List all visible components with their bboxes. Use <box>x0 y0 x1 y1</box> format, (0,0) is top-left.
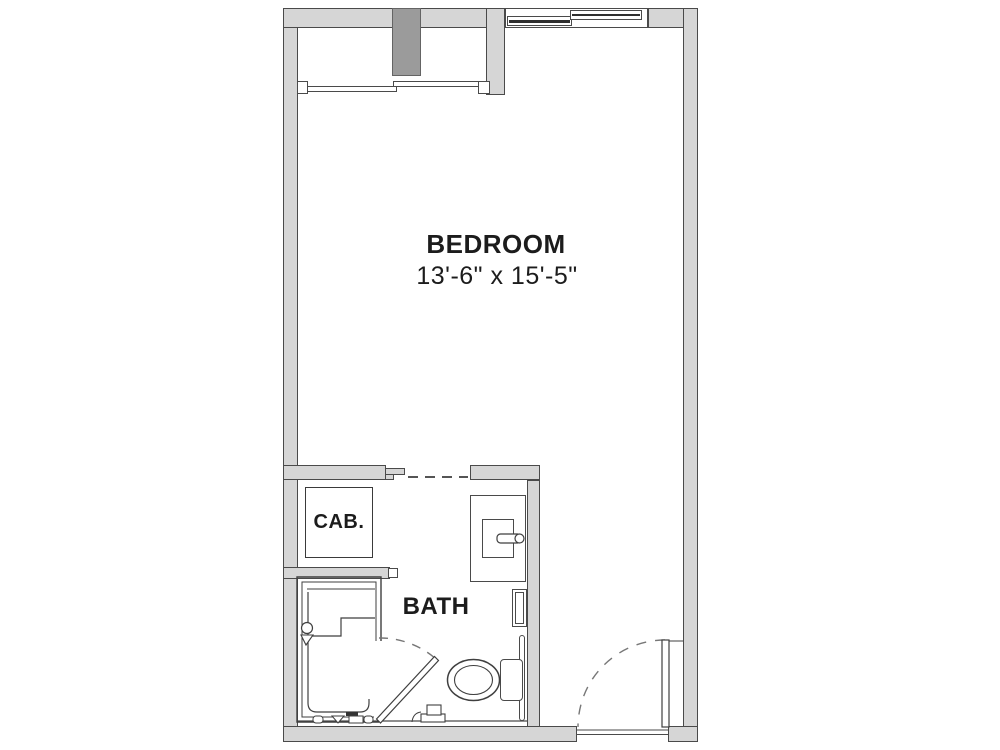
shower-valve <box>302 623 313 634</box>
sink-alcove-top-wall <box>470 465 540 480</box>
floor-plan: BEDROOM 13'-6" x 15'-5" CAB. BATH <box>0 0 1000 750</box>
shower-fitting-mid <box>349 716 363 723</box>
shower-inner-line <box>302 582 376 717</box>
door-stop-base <box>421 714 445 722</box>
shelf-unit <box>512 589 527 627</box>
shower-drain-tick <box>346 712 358 716</box>
toilet-bowl <box>448 660 500 701</box>
door-stop-arc <box>412 712 421 722</box>
bath-top-wall <box>283 465 386 480</box>
shower-wall-end-cap <box>388 568 398 578</box>
shower-valve-handle <box>301 635 313 645</box>
bath-door-jamb-step <box>385 474 394 480</box>
bath-door-arc <box>379 638 436 659</box>
shower-fitting-triangle <box>332 716 344 723</box>
structural-column <box>392 8 421 76</box>
entry-door-leaf <box>662 640 669 727</box>
shower-seat <box>311 618 375 636</box>
shower-fitting-right <box>364 716 373 723</box>
window-glass-left <box>509 20 570 23</box>
window-frame <box>505 8 648 28</box>
cabinet-label: CAB. <box>305 487 373 558</box>
door-stop-block <box>427 705 441 715</box>
toilet-bowl-inner <box>455 666 493 695</box>
bath-right-wall <box>527 480 540 727</box>
entry-door <box>577 640 683 735</box>
cabinet-bottom-wall <box>283 567 390 579</box>
shower-pan <box>308 592 369 712</box>
shelf-inner <box>515 592 524 624</box>
entry-threshold <box>577 730 668 735</box>
right-wall <box>683 8 698 742</box>
bottom-wall-left <box>283 726 577 742</box>
fixtures-overlay <box>0 0 1000 750</box>
shower-outer-line <box>297 577 381 722</box>
closet-sliding-door-left <box>307 86 397 92</box>
window-glass-right <box>572 14 640 17</box>
sink-basin <box>482 519 514 558</box>
toilet-tank <box>500 659 523 701</box>
closet-jamb-right <box>478 81 490 94</box>
bedroom-label: BEDROOM <box>371 228 621 260</box>
bottom-wall-right <box>668 726 698 742</box>
left-wall <box>283 8 298 742</box>
shower-fitting-left <box>313 716 323 723</box>
entry-door-arc <box>578 640 665 727</box>
bath-door <box>377 638 446 723</box>
shower-stall <box>297 577 381 723</box>
toilet <box>448 660 500 701</box>
bath-label: BATH <box>381 592 491 622</box>
bath-door-leaf <box>377 657 439 724</box>
bedroom-dimensions: 13'-6" x 15'-5" <box>372 260 622 292</box>
closet-sliding-door-right <box>393 81 479 87</box>
